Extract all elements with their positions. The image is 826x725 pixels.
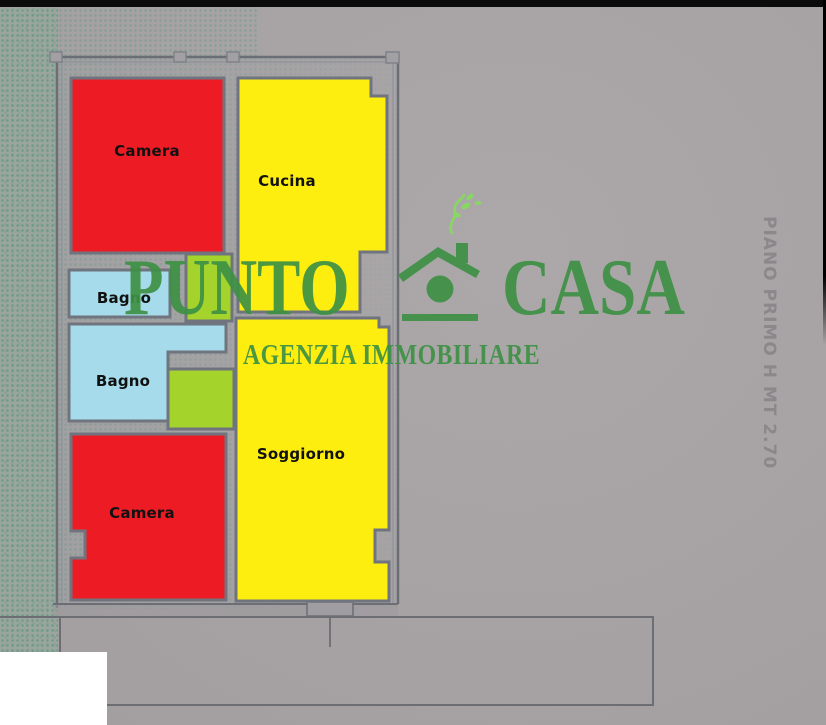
house-glyph — [398, 243, 480, 321]
white-patch — [0, 652, 107, 725]
room-camera-top — [71, 78, 224, 253]
label-cucina: Cucina — [258, 172, 316, 190]
label-camera-top: Camera — [114, 142, 180, 160]
brand-tagline: AGENZIA IMMOBILIARE — [243, 341, 540, 371]
brand-text-casa: CASA — [502, 248, 685, 328]
label-bagno-large: Bagno — [96, 372, 150, 390]
room-storage-mid — [168, 369, 234, 429]
balcony-outline — [60, 617, 653, 705]
balcony-door-threshold — [307, 602, 353, 616]
scan-edge-top — [0, 0, 826, 7]
chimney-smoke-leaves — [452, 192, 481, 218]
house-with-chimney-icon — [396, 188, 488, 328]
brand-text-punto: PUNTO — [124, 248, 350, 328]
floor-note-vertical: PIANO PRIMO H MT 2.70 — [759, 216, 779, 476]
label-soggiorno: Soggiorno — [257, 445, 345, 463]
scanned-floor-plan-page: Camera Cucina Bagno Bagno Camera Soggior… — [0, 0, 826, 725]
label-camera-bottom: Camera — [109, 504, 175, 522]
